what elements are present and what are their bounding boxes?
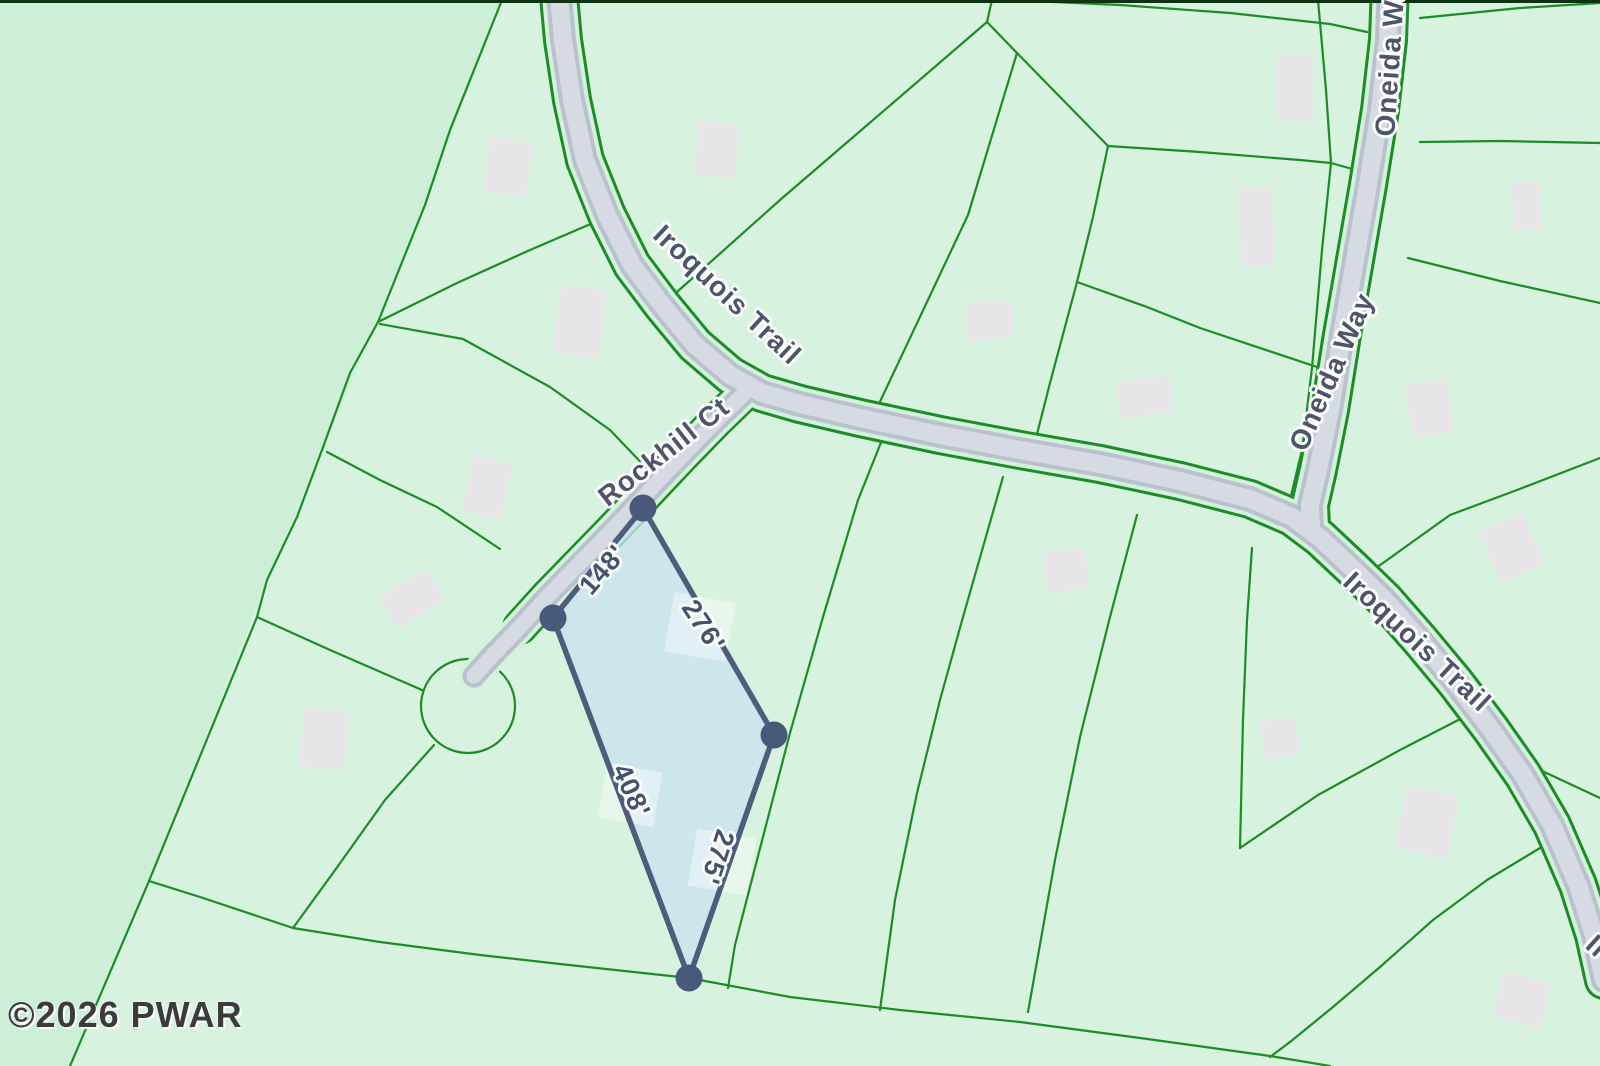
building-footprint <box>696 122 739 178</box>
parcel-corner-dot <box>630 495 657 522</box>
plat-map-canvas[interactable] <box>0 0 1600 1066</box>
building-footprint <box>1405 378 1454 437</box>
building-footprint <box>552 285 607 359</box>
building-footprint <box>1512 181 1542 231</box>
building-footprint <box>1277 55 1313 121</box>
building-footprint <box>966 300 1013 340</box>
plat-map[interactable]: Iroquois TrailRockhill CtIroquois TrailO… <box>0 0 1600 1066</box>
parcel-corner-dot <box>540 605 567 632</box>
building-footprint <box>1116 375 1174 418</box>
building-footprint <box>1239 187 1275 266</box>
watermark: ©2026 PWAR <box>8 994 243 1036</box>
parcel-corner-dot <box>761 722 788 749</box>
building-footprint <box>1259 717 1301 760</box>
building-footprint <box>298 707 351 771</box>
parcel-corner-dot <box>676 965 703 992</box>
building-footprint <box>1042 547 1089 592</box>
map-top-edge-line <box>0 0 1600 3</box>
